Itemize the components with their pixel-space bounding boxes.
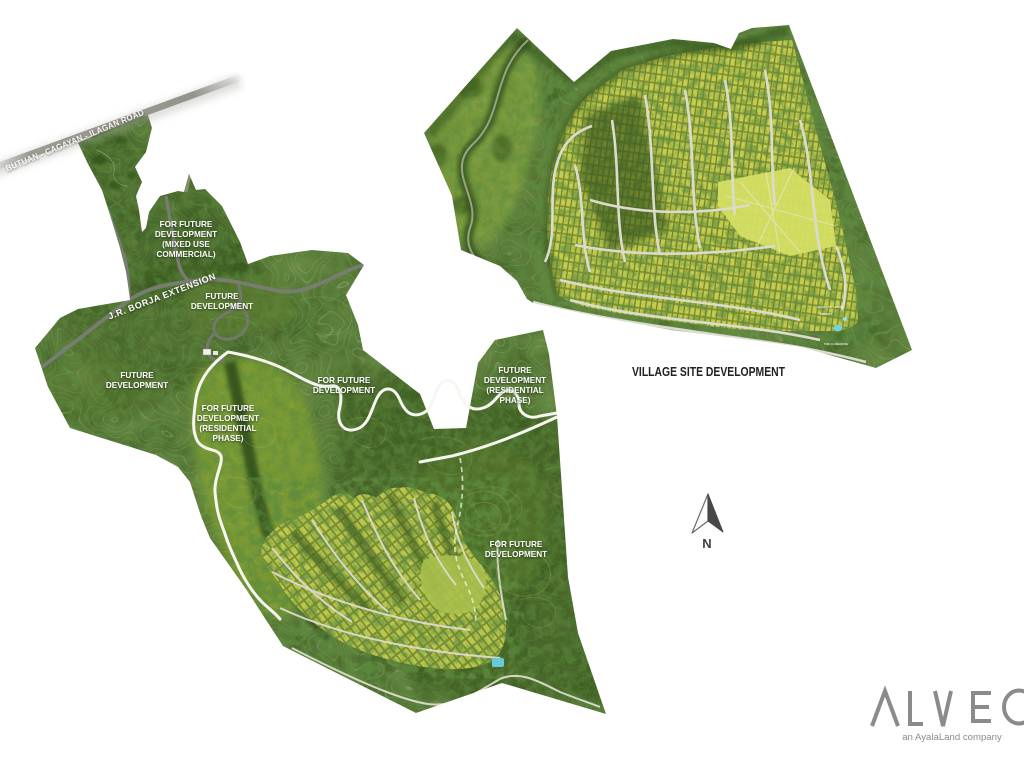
- svg-text:an AyalaLand company: an AyalaLand company: [902, 732, 1002, 743]
- svg-text:PHASE): PHASE): [500, 396, 531, 405]
- svg-text:DEVELOPMENT: DEVELOPMENT: [106, 381, 168, 390]
- svg-text:PHASE): PHASE): [213, 434, 244, 443]
- svg-text:FUTURE: FUTURE: [120, 371, 154, 380]
- svg-text:MOUNTAIN LODGE: MOUNTAIN LODGE: [817, 305, 843, 309]
- svg-text:DEVELOPMENT: DEVELOPMENT: [197, 414, 259, 423]
- svg-text:(RESIDENTIAL: (RESIDENTIAL: [486, 386, 543, 395]
- svg-text:FOR FUTURE: FOR FUTURE: [490, 540, 543, 549]
- svg-text:DEVELOPMENT: DEVELOPMENT: [484, 376, 546, 385]
- svg-text:(MIXED USE: (MIXED USE: [162, 240, 210, 249]
- svg-text:DEVELOPMENT: DEVELOPMENT: [485, 550, 547, 559]
- svg-text:THE CLUBHOUSE: THE CLUBHOUSE: [824, 342, 848, 346]
- svg-text:DEVELOPMENT: DEVELOPMENT: [191, 302, 253, 311]
- svg-text:N: N: [702, 536, 711, 551]
- svg-text:FOR FUTURE: FOR FUTURE: [318, 376, 371, 385]
- svg-text:AMENITY: AMENITY: [820, 312, 833, 316]
- svg-text:(RESIDENTIAL: (RESIDENTIAL: [199, 424, 256, 433]
- svg-text:FUTURE: FUTURE: [498, 366, 532, 375]
- svg-text:DEVELOPMENT: DEVELOPMENT: [155, 230, 217, 239]
- svg-text:COMMERCIAL): COMMERCIAL): [156, 250, 215, 259]
- svg-text:VILLAGE SITE DEVELOPMENT: VILLAGE SITE DEVELOPMENT: [632, 364, 785, 379]
- svg-text:FOR FUTURE: FOR FUTURE: [160, 220, 213, 229]
- svg-text:FOR FUTURE: FOR FUTURE: [202, 404, 255, 413]
- svg-text:DEVELOPMENT: DEVELOPMENT: [313, 386, 375, 395]
- svg-text:FUTURE: FUTURE: [205, 292, 239, 301]
